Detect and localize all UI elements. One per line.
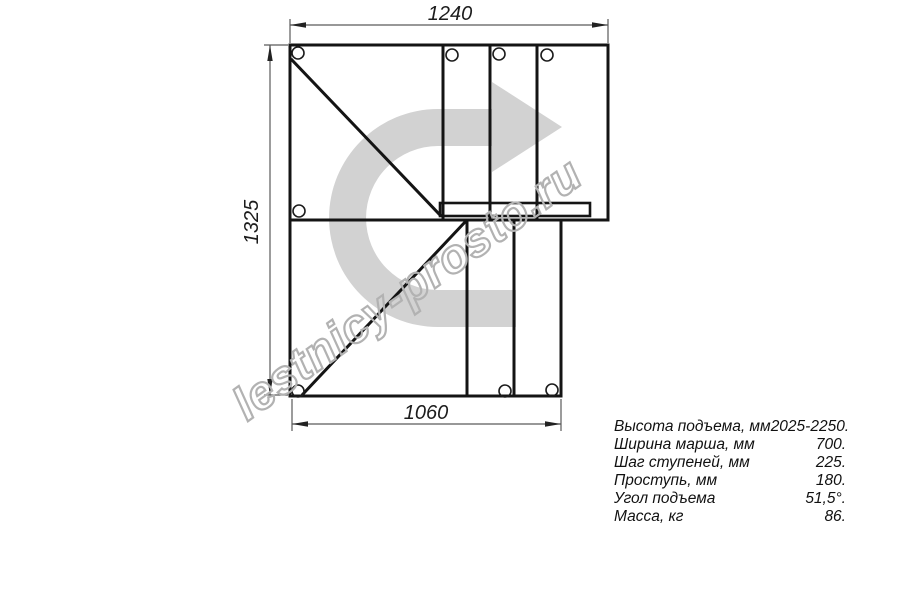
spec-label: Высота подъема, мм [614, 418, 771, 436]
dim-arrow-icon [290, 22, 306, 27]
mounting-hole [292, 47, 304, 59]
spec-row: Угол подъема 51,5°. [614, 490, 846, 508]
stair-structure-lines [290, 45, 608, 396]
spec-row: Проступь, мм 180. [614, 472, 846, 490]
dimension-label-top: 1240 [428, 3, 473, 25]
spec-row: Ширина марша, мм 700. [614, 436, 846, 454]
mounting-hole [546, 384, 558, 396]
dim-arrow-icon [292, 421, 308, 426]
spec-value: 225. [816, 454, 846, 472]
spec-row: Шаг ступеней, мм 225. [614, 454, 846, 472]
mounting-hole [293, 205, 305, 217]
mounting-hole [446, 49, 458, 61]
dim-arrow-icon [545, 421, 561, 426]
dimension-lines [264, 19, 608, 431]
spec-label: Ширина марша, мм [614, 436, 755, 454]
spec-value: 180. [816, 472, 846, 490]
dimension-label-bottom: 1060 [404, 402, 449, 424]
landing-step-plate [440, 203, 590, 216]
mounting-hole [493, 48, 505, 60]
spec-label: Масса, кг [614, 508, 683, 526]
spec-value: 51,5°. [805, 490, 846, 508]
dimension-arrowheads [267, 22, 608, 426]
mounting-hole [541, 49, 553, 61]
spec-row: Масса, кг 86. [614, 508, 846, 526]
dimension-label-left: 1325 [241, 199, 263, 244]
spec-value: 700. [816, 436, 846, 454]
spec-value: 86. [824, 508, 846, 526]
spec-table: Высота подъема, мм 2025-2250. Ширина мар… [614, 418, 846, 526]
spec-label: Проступь, мм [614, 472, 717, 490]
spec-label: Шаг ступеней, мм [614, 454, 750, 472]
dim-arrow-icon [267, 45, 272, 61]
spec-row: Высота подъема, мм 2025-2250. [614, 418, 846, 436]
u-turn-arrow-icon [329, 82, 562, 327]
dim-arrow-icon [592, 22, 608, 27]
dim-arrow-icon [267, 379, 272, 395]
stair-drawing-canvas: 1240 1325 1060 lestnicy-prosto.ru Высота… [0, 0, 900, 600]
spec-value: 2025-2250. [771, 418, 849, 436]
spec-label: Угол подъема [614, 490, 715, 508]
